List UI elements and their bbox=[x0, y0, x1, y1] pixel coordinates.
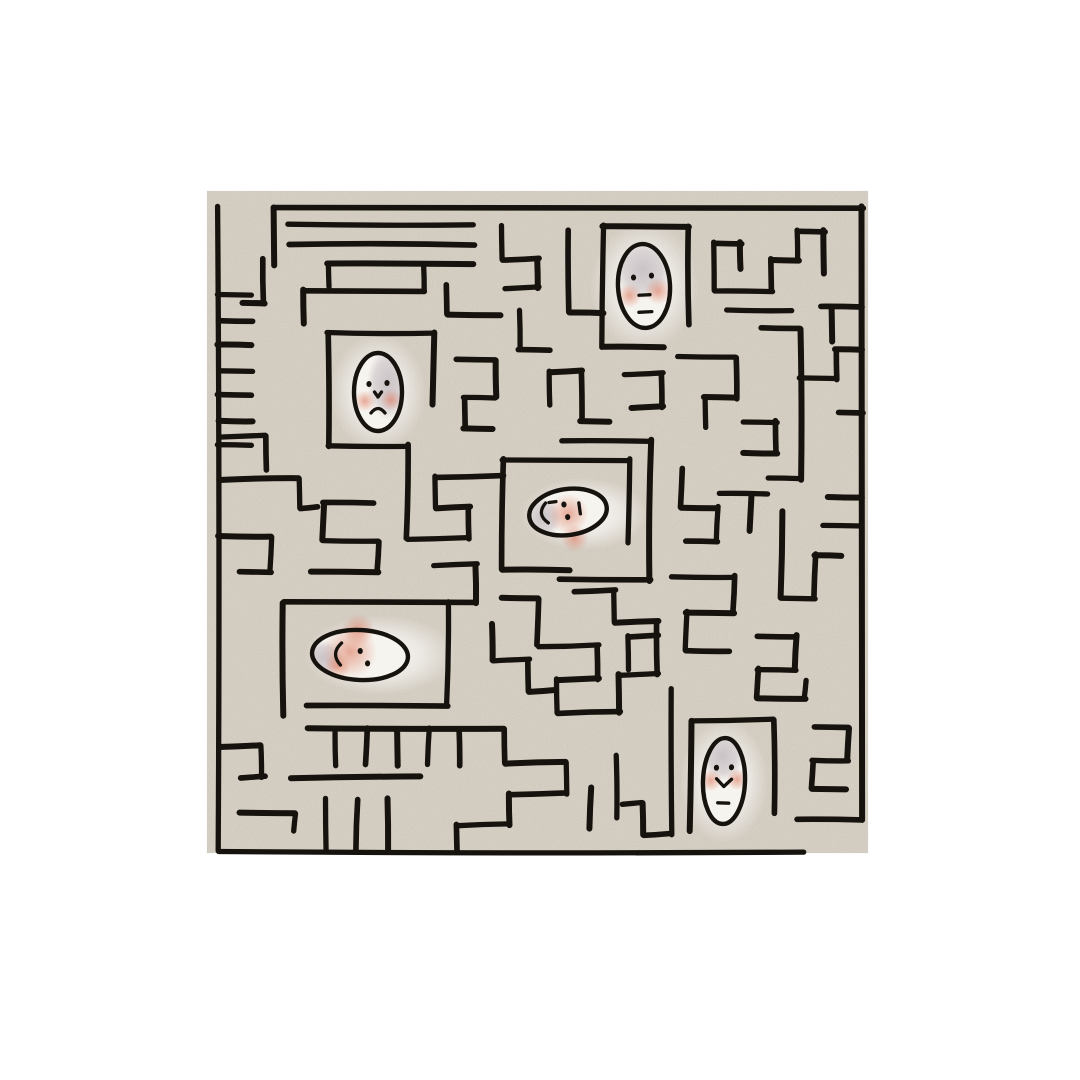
maze-wall bbox=[692, 719, 774, 721]
maze-wall bbox=[628, 636, 629, 670]
maze-wall bbox=[832, 308, 833, 342]
maze-wall bbox=[580, 421, 609, 422]
maze-wall bbox=[686, 651, 730, 652]
maze-wall bbox=[644, 834, 671, 836]
maze-wall bbox=[463, 428, 492, 429]
maze-wall bbox=[456, 825, 457, 852]
maze-wall bbox=[218, 536, 271, 537]
maze-wall bbox=[304, 291, 424, 292]
maze-wall bbox=[219, 852, 804, 853]
maze-wall bbox=[549, 371, 550, 405]
maze-wall bbox=[448, 315, 501, 316]
maze-wall bbox=[750, 497, 752, 531]
maze-wall bbox=[821, 306, 862, 307]
maze-wall bbox=[604, 347, 664, 348]
maze-wall bbox=[468, 507, 469, 539]
maze-wall bbox=[629, 635, 658, 637]
maze-wall bbox=[377, 542, 379, 571]
maze-wall bbox=[503, 258, 539, 260]
maze-wall bbox=[459, 729, 460, 765]
maze-wall bbox=[804, 680, 806, 697]
maze-wall bbox=[388, 798, 389, 851]
maze-wall bbox=[408, 538, 468, 540]
maze-wall bbox=[686, 541, 718, 542]
maze-wall bbox=[812, 789, 846, 790]
maze-wall bbox=[446, 285, 447, 314]
maze-wall bbox=[502, 226, 503, 260]
maze-wall bbox=[705, 398, 706, 427]
maze-wall bbox=[622, 803, 642, 805]
maze-wall bbox=[688, 226, 689, 324]
maze-wall bbox=[690, 721, 692, 831]
maze-wall bbox=[835, 349, 862, 350]
maze-wall bbox=[559, 579, 650, 580]
maze-wall bbox=[828, 497, 862, 498]
maze-wall bbox=[217, 395, 251, 396]
maze-wall bbox=[616, 755, 617, 818]
maze-wall bbox=[602, 226, 689, 227]
maze-wall bbox=[328, 446, 407, 447]
maze-wall bbox=[797, 230, 798, 259]
maze-wall bbox=[704, 397, 736, 398]
maze-wall bbox=[539, 645, 599, 647]
maze-wall bbox=[504, 729, 505, 763]
maze-wall bbox=[274, 207, 864, 208]
maze-wall bbox=[823, 230, 824, 274]
maze-wall bbox=[289, 244, 474, 245]
maze-wall bbox=[569, 312, 603, 313]
maze-wall bbox=[801, 329, 802, 480]
maze-wall bbox=[781, 598, 815, 599]
maze-wall bbox=[322, 504, 324, 540]
maze-wall bbox=[839, 412, 863, 413]
maze-wall bbox=[597, 646, 598, 680]
maze-wall bbox=[768, 478, 800, 479]
maze-wall bbox=[716, 507, 718, 541]
maze-wall bbox=[335, 729, 336, 765]
maze-wall bbox=[757, 636, 796, 637]
maze-wall bbox=[772, 260, 799, 261]
maze-wall bbox=[436, 476, 503, 478]
maze-wall bbox=[433, 333, 435, 405]
maze-wall bbox=[219, 478, 298, 480]
maze-wall bbox=[263, 259, 264, 303]
maze-wall bbox=[581, 372, 582, 420]
maze-wall bbox=[520, 310, 521, 349]
maze-wall bbox=[715, 291, 773, 292]
maze-wall bbox=[435, 476, 436, 508]
maze-wall bbox=[505, 762, 565, 764]
maze-wall bbox=[757, 669, 759, 698]
maze-wall bbox=[562, 441, 651, 442]
maze-wall bbox=[436, 507, 470, 509]
maze-wall bbox=[282, 603, 283, 716]
maze-wall bbox=[217, 295, 251, 296]
maze-wall bbox=[558, 678, 599, 680]
maze-wall bbox=[219, 421, 253, 422]
maze-wall bbox=[727, 310, 792, 311]
maze-wall bbox=[496, 360, 497, 396]
maze-wall bbox=[428, 728, 430, 764]
maze-wall bbox=[740, 242, 741, 269]
maze-wall bbox=[311, 572, 378, 573]
maze-wall bbox=[241, 776, 265, 778]
maze-wall bbox=[366, 728, 368, 764]
maze-wall bbox=[719, 493, 767, 494]
maze-wall bbox=[619, 674, 620, 713]
maze-wall bbox=[814, 727, 848, 728]
maze-wall bbox=[620, 674, 659, 676]
maze-wall bbox=[261, 746, 262, 778]
maze-wall bbox=[733, 576, 735, 612]
maze-wall bbox=[288, 224, 473, 225]
maze-wall bbox=[624, 373, 663, 375]
maze-wall bbox=[681, 508, 717, 509]
maze-wall bbox=[465, 399, 466, 428]
maze-wall bbox=[270, 537, 272, 571]
maze-wall bbox=[686, 613, 734, 614]
maze-wall bbox=[447, 602, 449, 705]
maze-wall bbox=[529, 690, 553, 692]
maze-wall bbox=[291, 776, 420, 778]
maze-wall bbox=[685, 611, 687, 650]
maze-wall bbox=[537, 259, 538, 288]
maze-wall bbox=[328, 265, 329, 287]
maze-wall bbox=[672, 577, 735, 578]
maze-wall bbox=[323, 541, 378, 542]
maze-wall bbox=[774, 720, 775, 814]
maze-wall bbox=[219, 371, 253, 372]
maze-wall bbox=[240, 572, 272, 573]
maze-wall bbox=[518, 350, 550, 351]
maze-wall bbox=[823, 525, 862, 526]
maze-illustration bbox=[0, 0, 1080, 1080]
maze-wall bbox=[628, 459, 630, 543]
maze-wall bbox=[434, 564, 478, 566]
maze-wall bbox=[303, 290, 304, 324]
maze-wall bbox=[743, 422, 777, 423]
maze-wall bbox=[397, 729, 398, 765]
maze-wall bbox=[602, 225, 604, 347]
maze-wall bbox=[240, 813, 295, 814]
maze-wall bbox=[502, 460, 629, 461]
maze-wall bbox=[558, 712, 621, 714]
maze-wall bbox=[795, 635, 797, 669]
maze-wall bbox=[219, 745, 260, 747]
maze-wall bbox=[861, 206, 862, 820]
maze-wall bbox=[219, 435, 265, 437]
maze-wall bbox=[537, 599, 539, 645]
maze-wall bbox=[736, 358, 737, 399]
maze-wall bbox=[557, 679, 558, 713]
maze-wall bbox=[797, 819, 862, 820]
maze-wall bbox=[243, 303, 265, 304]
illustration-stage bbox=[0, 0, 1080, 1080]
maze-wall bbox=[656, 622, 657, 675]
maze-wall bbox=[614, 591, 615, 623]
maze-wall bbox=[836, 350, 837, 379]
maze-wall bbox=[266, 436, 267, 470]
maze-wall bbox=[574, 590, 615, 592]
maze-wall bbox=[632, 406, 664, 408]
maze-wall bbox=[757, 670, 796, 671]
maze-wall bbox=[218, 206, 219, 851]
maze-wall bbox=[502, 569, 569, 570]
maze-wall bbox=[327, 263, 473, 264]
maze-wall bbox=[294, 814, 296, 831]
maze-wall bbox=[775, 421, 776, 453]
maze-wall bbox=[323, 502, 374, 503]
maze-wall bbox=[757, 698, 805, 699]
maze-wall bbox=[811, 761, 813, 788]
maze-wall bbox=[475, 564, 476, 603]
maze-wall bbox=[771, 259, 772, 291]
maze-wall bbox=[424, 265, 425, 292]
maze-wall bbox=[328, 334, 329, 447]
maze-wall bbox=[493, 659, 529, 661]
maze-wall bbox=[300, 507, 317, 509]
maze-wall bbox=[509, 794, 510, 826]
maze-wall bbox=[781, 511, 783, 597]
maze-wall bbox=[299, 479, 300, 508]
maze-wall bbox=[847, 728, 849, 760]
maze-wall bbox=[661, 373, 662, 407]
maze-wall bbox=[743, 453, 777, 454]
maze-wall bbox=[643, 803, 644, 835]
maze-wall bbox=[505, 287, 539, 289]
maze-wall bbox=[681, 468, 683, 507]
maze-wall bbox=[812, 760, 848, 761]
maze-wall bbox=[671, 689, 672, 835]
maze-wall bbox=[219, 321, 253, 322]
maze-wall bbox=[568, 230, 569, 312]
maze-wall bbox=[327, 333, 433, 334]
maze-wall bbox=[649, 440, 651, 581]
maze-wall bbox=[492, 624, 493, 660]
maze-wall bbox=[615, 621, 659, 623]
maze-wall bbox=[217, 445, 251, 446]
maze-wall bbox=[678, 357, 736, 358]
maze-wall bbox=[761, 328, 800, 329]
maze-wall bbox=[456, 359, 495, 360]
maze-wall bbox=[463, 397, 495, 398]
maze-wall bbox=[589, 788, 591, 829]
maze-wall bbox=[814, 554, 816, 598]
maze-wall bbox=[502, 598, 538, 599]
maze-wall bbox=[307, 705, 448, 706]
maze-wall bbox=[326, 798, 327, 851]
maze-wall bbox=[528, 660, 529, 692]
maze-wall bbox=[714, 242, 715, 290]
maze-wall bbox=[458, 824, 509, 826]
maze-wall bbox=[217, 345, 251, 346]
maze-wall bbox=[274, 208, 275, 266]
maze-wall bbox=[406, 445, 408, 539]
maze-wall bbox=[356, 800, 358, 851]
maze-wall bbox=[550, 371, 582, 373]
maze-wall bbox=[815, 555, 842, 556]
maze-wall bbox=[799, 378, 835, 379]
maze-wall bbox=[566, 763, 567, 795]
maze-wall bbox=[510, 793, 565, 795]
